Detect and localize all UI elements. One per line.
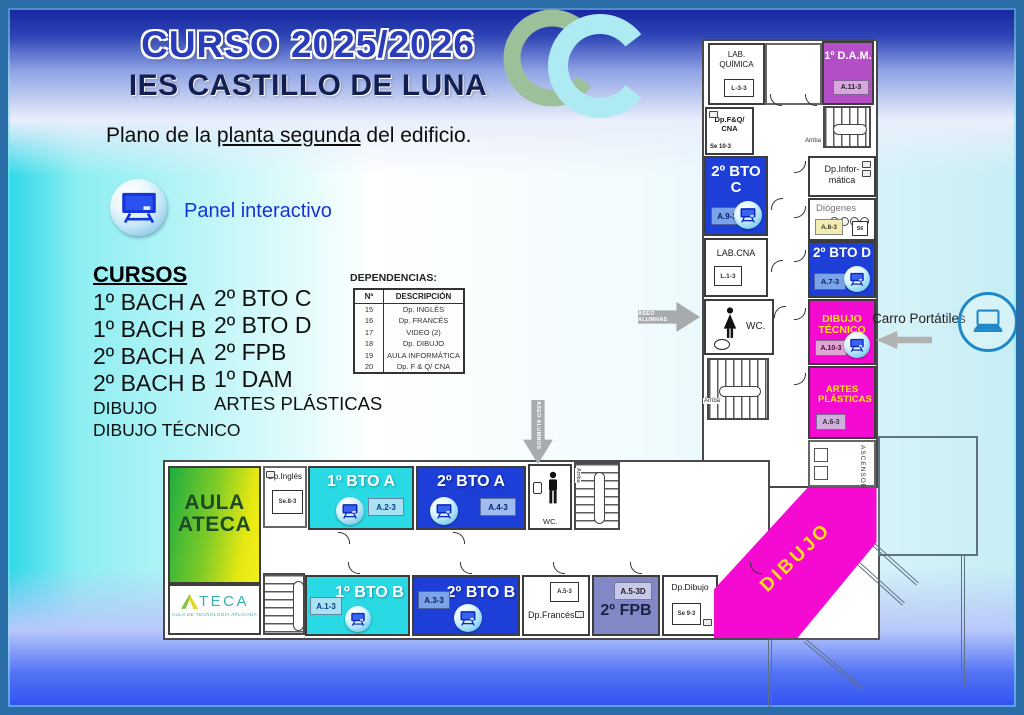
plan-subtitle: Plano de la planta segunda del edificio. (106, 124, 471, 148)
aseo-alumnos-arrow: ASEO ALUMNOS (523, 400, 553, 464)
woman-icon (721, 307, 739, 341)
room-diogenes: Diógenes A.8-3 S6 (808, 198, 876, 241)
curso-item: ARTES PLÁSTICAS (214, 393, 382, 415)
interactive-panel-icon (336, 497, 364, 525)
room-2-bto-c: 2º BTO C A.9-3 (704, 156, 768, 236)
room-dp-ingles: Dp.Inglés Se.8-3 (263, 466, 307, 528)
interactive-panel-icon (844, 332, 870, 358)
panel-interactivo-label: Panel interactivo (184, 200, 332, 223)
table-row: 18Dp. DIBUJO (354, 338, 464, 349)
room-1-bto-b: A.1-3 1º BTO B (305, 575, 410, 636)
aseo-alumnas-arrow: ASEO ALUMNAS (638, 302, 700, 332)
room-dp-fq-cna: Dp.F&Q/ CNA Se 10-3 (705, 107, 754, 155)
dependencias-title: DEPENDENCIAS: (350, 272, 437, 284)
interactive-panel-icon (844, 266, 870, 292)
room-wc-alumnos: WC. (528, 464, 572, 530)
ateca-brand: TECA (199, 593, 249, 610)
interactive-panel-icon (430, 497, 458, 525)
room-2-bto-b: A.3-3 2º BTO B (412, 575, 520, 636)
stairs (263, 573, 305, 635)
whiteboard-icon (120, 191, 158, 225)
table-row: 17VIDEO (2) (354, 327, 464, 338)
room-dp-informatica: Dp.Infor-mática (808, 156, 876, 197)
laptop-icon (958, 292, 1018, 352)
ateca-triangle-icon (180, 593, 199, 610)
ateca-tagline: AULA DE TECNOLOGÍA APLICADA (170, 612, 259, 617)
elevator-shaft (814, 466, 828, 480)
room-1-dam: 1º D.A.M. A.11-3 (822, 41, 874, 105)
room-1-bto-a: 1º BTO A A.2-3 (308, 466, 414, 530)
cursos-title: CURSOS (93, 262, 187, 288)
man-icon (545, 470, 561, 508)
wall-line (768, 640, 772, 710)
ateca-logo: TECA (170, 593, 259, 610)
ateca-logo-box: TECA AULA DE TECNOLOGÍA APLICADA (168, 584, 261, 635)
arriba-label: Arriba (703, 398, 721, 404)
carro-portatiles-label: Carro Portátiles (872, 311, 966, 326)
table-row: 15Dp. INGLÉS (354, 304, 464, 316)
sink-icon (533, 482, 542, 494)
panel-marker-icon (709, 111, 718, 118)
table-row: 19AULA INFORMÁTICA (354, 350, 464, 361)
elevator-shaft (814, 448, 828, 462)
subtitle-suffix: del edificio. (361, 124, 472, 147)
curso-item: DIBUJO TÉCNICO (93, 419, 240, 441)
panel-marker-icon (862, 170, 871, 177)
panel-marker-icon (703, 619, 712, 626)
arriba-label: Arriba (575, 468, 581, 483)
room-dibujo-tecnico: DIBUJO TÉCNICO A.10-3 (808, 299, 876, 365)
subtitle-prefix: Plano de la (106, 124, 217, 147)
room-lab-cna: LAB.CNA L.1-3 (704, 238, 768, 297)
dependencias-table: NºDESCRIPCIÓN 15Dp. INGLÉS 16Dp. FRANCÉS… (353, 288, 465, 374)
stairs (707, 358, 769, 420)
interactive-panel-icon (734, 201, 762, 229)
panel-marker-icon (862, 161, 871, 168)
course-title: CURSO 2025/2026 (138, 24, 478, 66)
interactive-panel-icon (345, 606, 371, 632)
wall-line (961, 556, 965, 686)
room-dp-frances: A.5-3 Dp.Francés (522, 575, 590, 636)
arriba-label: Arriba (805, 138, 821, 144)
room-2-bto-a: 2º BTO A A.4-3 (416, 466, 526, 530)
landing-outline (878, 436, 978, 556)
carro-arrow (876, 331, 932, 349)
table-row: 16Dp. FRANCÉS (354, 315, 464, 326)
room-ascensor: ASCENSOR (808, 440, 876, 487)
interactive-panel-icon (454, 604, 482, 632)
stairs (823, 106, 871, 148)
table-row: 20Dp. F & Q/ CNA (354, 361, 464, 373)
interactive-panel-legend-icon (110, 179, 167, 236)
column-header: DESCRIPCIÓN (384, 289, 465, 304)
room-wc-alumnas: WC. (704, 299, 774, 355)
school-cc-logo (500, 0, 660, 132)
toilet-icon (714, 339, 730, 350)
panel-marker-icon (575, 611, 584, 618)
panel-marker-icon (266, 471, 275, 478)
room-aula-ateca: AULA ATECA (168, 466, 261, 584)
subtitle-underlined: planta segunda (217, 124, 361, 147)
school-title: IES CASTILLO DE LUNA (113, 69, 503, 103)
floorplan-poster: CURSO 2025/2026 IES CASTILLO DE LUNA Pla… (0, 0, 1024, 715)
room-dp-dibujo: Dp.Dibujo Se 9-3 (662, 575, 718, 636)
room-artes-plasticas: ARTES PLÁSTICAS A.6-3 (808, 366, 876, 439)
room-2-bto-d: 2º BTO D A.7-3 (808, 241, 876, 298)
room-2-fpb: A.5-3D 2º FPB (592, 575, 660, 636)
column-header: Nº (354, 289, 384, 304)
wall-line (804, 639, 865, 691)
room-lab-quimica: LAB. QUÍMICA L-3-3 (708, 43, 765, 105)
